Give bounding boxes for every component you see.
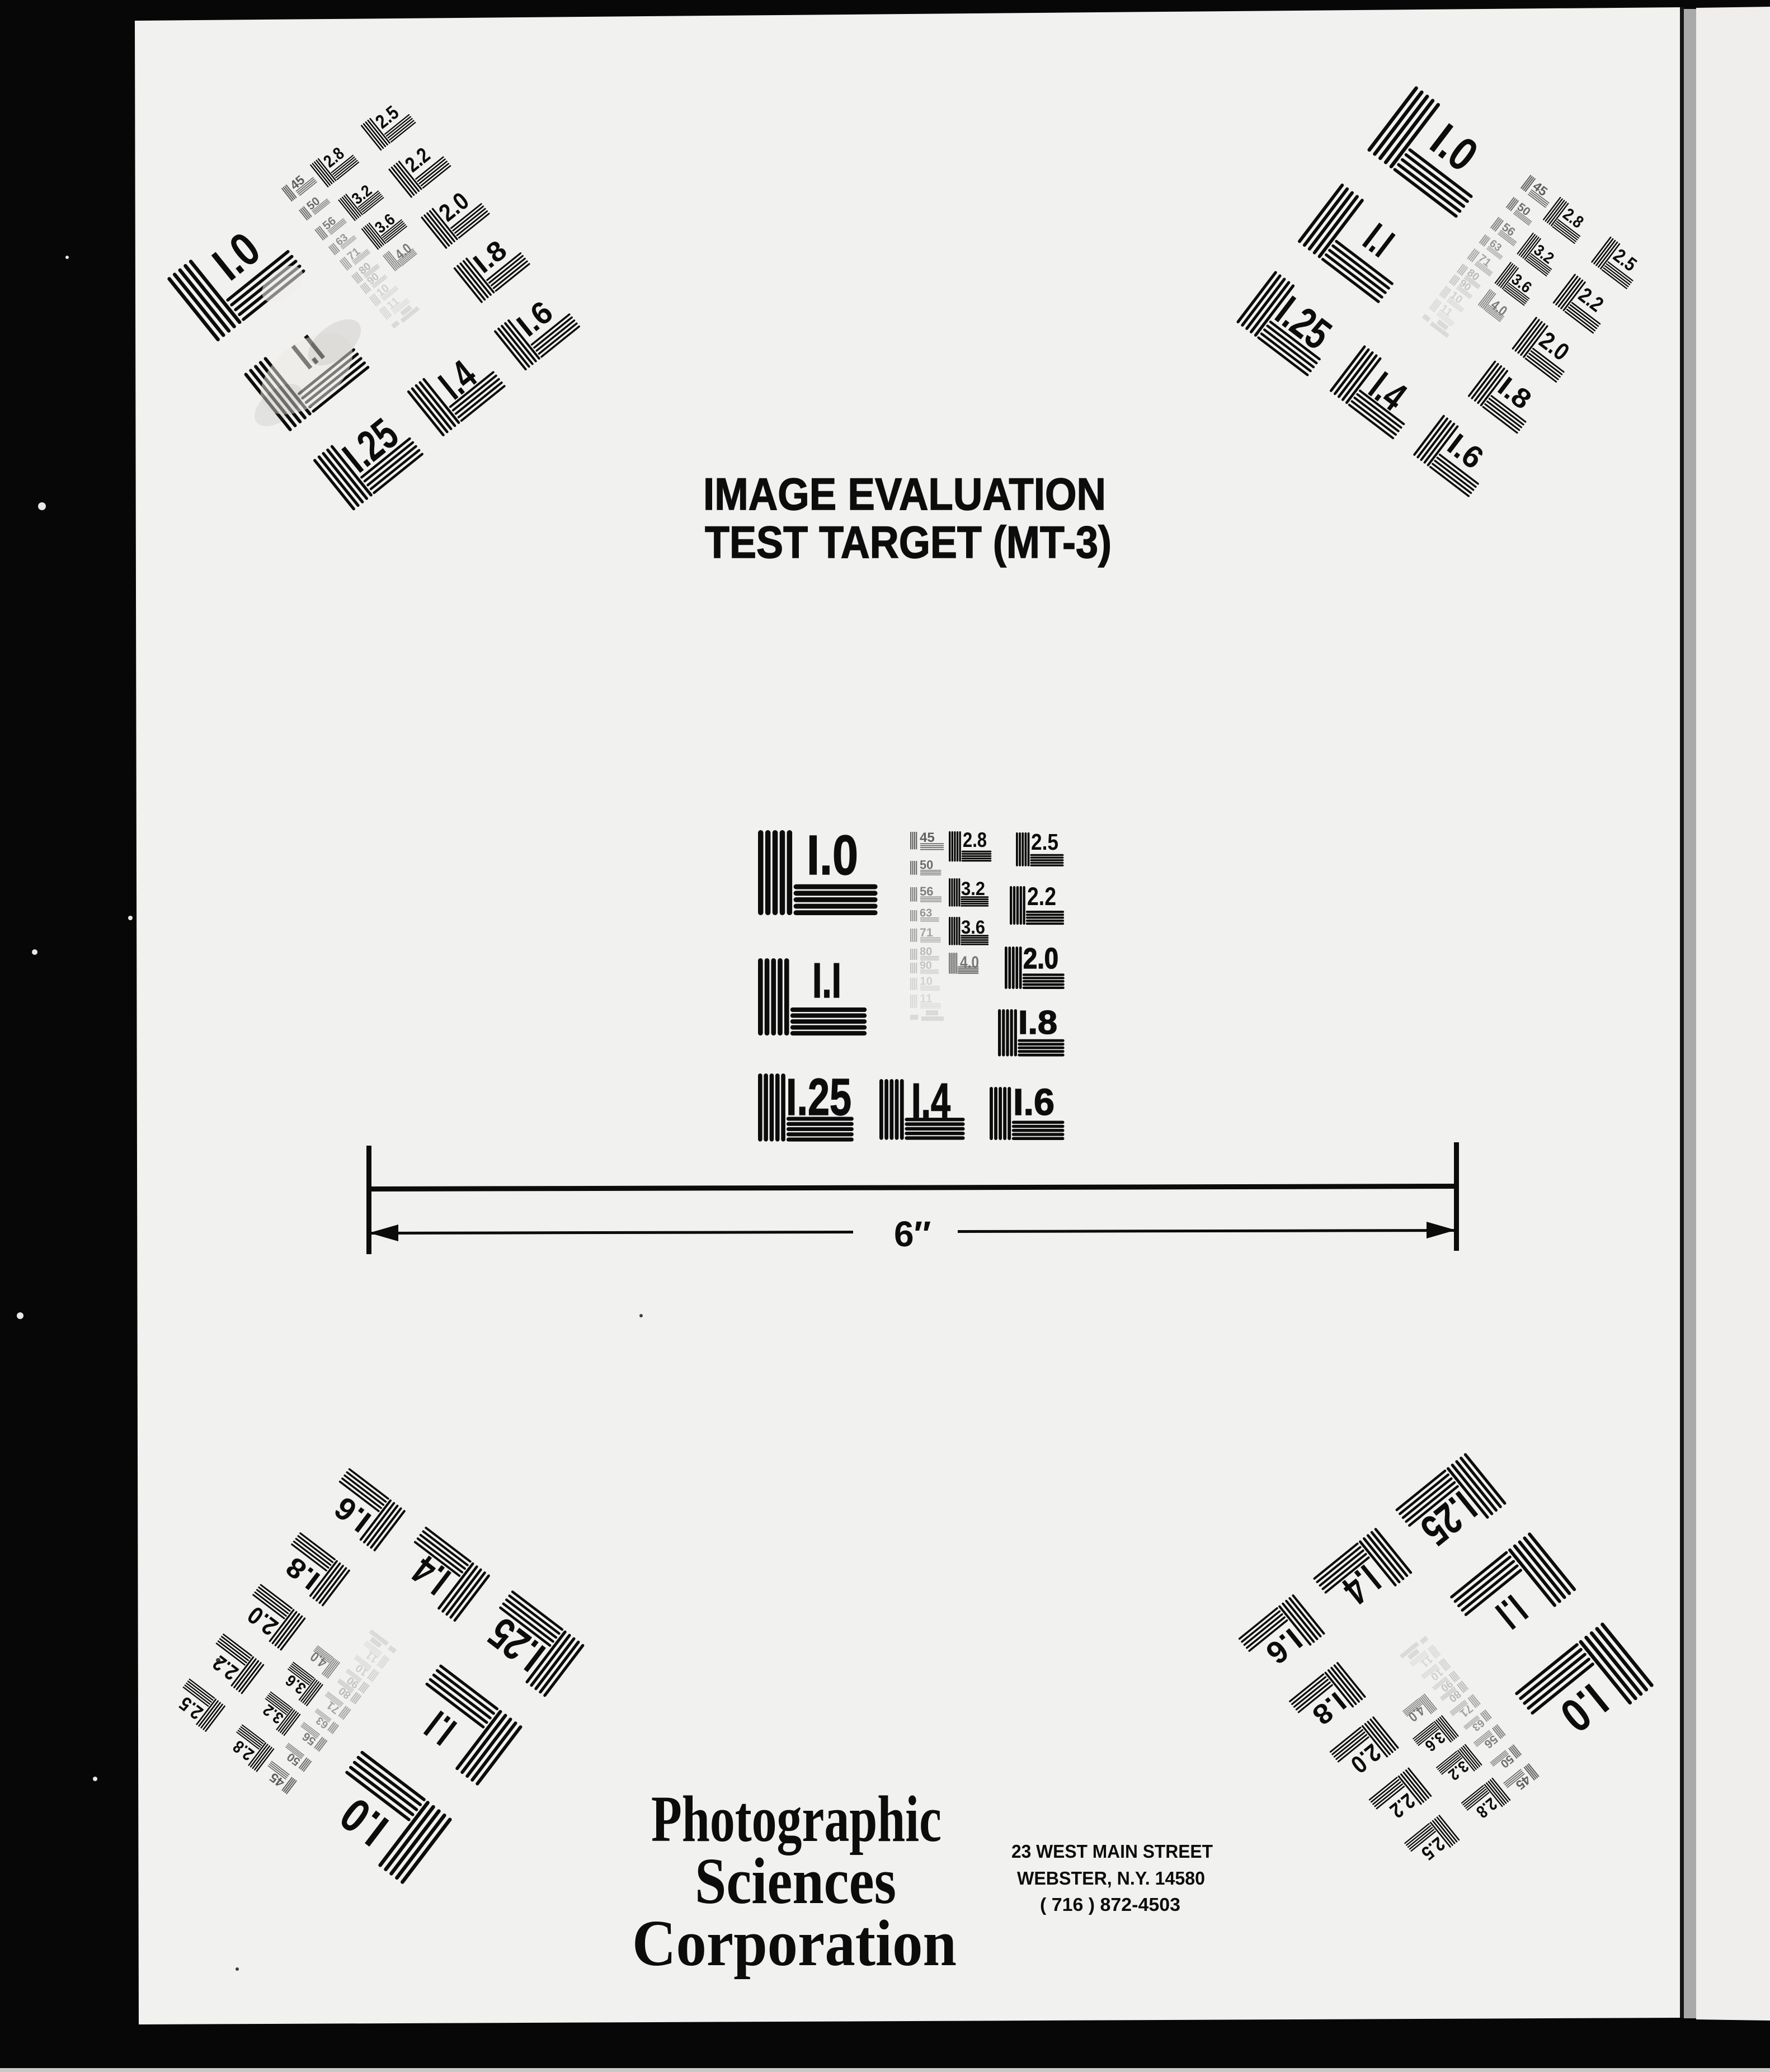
svg-text:I.25: I.25 bbox=[786, 1068, 851, 1126]
svg-text:11: 11 bbox=[920, 992, 933, 1005]
svg-text:WEBSTER, N.Y. 14580: WEBSTER, N.Y. 14580 bbox=[1017, 1868, 1205, 1889]
svg-text:50: 50 bbox=[920, 858, 933, 872]
svg-text:IMAGE EVALUATION: IMAGE EVALUATION bbox=[703, 469, 1106, 520]
svg-text:I.6: I.6 bbox=[1013, 1081, 1055, 1123]
svg-text:I.0: I.0 bbox=[807, 824, 858, 887]
svg-text:2.8: 2.8 bbox=[963, 828, 987, 851]
svg-text:Corporation: Corporation bbox=[632, 1906, 957, 1980]
svg-text:I.8: I.8 bbox=[1018, 1004, 1057, 1041]
svg-text:TEST TARGET (MT-3): TEST TARGET (MT-3) bbox=[705, 517, 1112, 568]
svg-text:2.2: 2.2 bbox=[1027, 882, 1056, 911]
svg-text:71: 71 bbox=[920, 926, 933, 939]
svg-text:3.2: 3.2 bbox=[961, 878, 985, 900]
svg-text:I.4: I.4 bbox=[911, 1073, 950, 1128]
svg-text:3.6: 3.6 bbox=[961, 917, 985, 938]
svg-text:2.0: 2.0 bbox=[1023, 943, 1058, 975]
svg-text:2.5: 2.5 bbox=[1031, 829, 1058, 855]
svg-text:56: 56 bbox=[920, 884, 934, 898]
svg-text:( 716 ) 872-4503: ( 716 ) 872-4503 bbox=[1040, 1894, 1180, 1915]
svg-text:6″: 6″ bbox=[894, 1214, 931, 1254]
svg-text:45: 45 bbox=[920, 830, 935, 845]
svg-text:10: 10 bbox=[920, 975, 933, 988]
svg-text:I.I: I.I bbox=[812, 953, 841, 1008]
svg-text:23 WEST MAIN STREET: 23 WEST MAIN STREET bbox=[1011, 1841, 1213, 1862]
svg-text:4.0: 4.0 bbox=[960, 953, 979, 972]
